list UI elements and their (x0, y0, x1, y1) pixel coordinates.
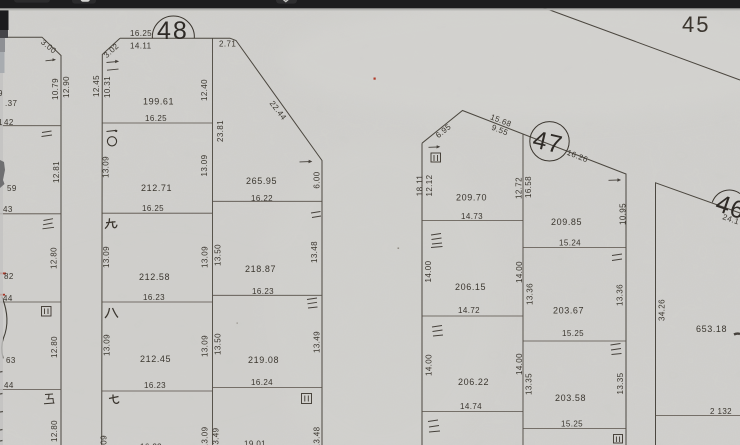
svg-text:16.25: 16.25 (130, 29, 152, 38)
svg-text:12.72: 12.72 (515, 177, 524, 199)
svg-text:13.36: 13.36 (616, 284, 625, 306)
svg-text:13.49: 13.49 (313, 331, 322, 353)
svg-text:44: 44 (4, 381, 14, 390)
svg-text:14.11: 14.11 (130, 42, 152, 51)
svg-text:43: 43 (3, 205, 13, 214)
svg-text:13.09: 13.09 (201, 246, 210, 268)
svg-text:14.72: 14.72 (458, 306, 480, 315)
svg-text:16.24: 16.24 (251, 378, 273, 387)
svg-text:12.90: 12.90 (62, 76, 71, 98)
svg-text:15.25: 15.25 (561, 420, 583, 429)
svg-text:206.15: 206.15 (455, 282, 486, 292)
svg-text:209.85: 209.85 (551, 217, 582, 227)
svg-text:265.95: 265.95 (246, 176, 277, 186)
svg-text:14.73: 14.73 (461, 212, 483, 221)
svg-text:9: 9 (0, 89, 3, 98)
svg-text:218.87: 218.87 (245, 264, 276, 274)
svg-text:45: 45 (682, 12, 710, 37)
svg-text:15.24: 15.24 (559, 239, 581, 248)
svg-text:12.40: 12.40 (200, 79, 209, 101)
svg-text:13.35: 13.35 (525, 373, 534, 395)
svg-text:206.22: 206.22 (458, 377, 489, 387)
svg-text:10.31: 10.31 (103, 76, 112, 98)
svg-text:13.09: 13.09 (102, 246, 111, 268)
svg-text:19.01: 19.01 (244, 440, 266, 445)
svg-text:16.25: 16.25 (142, 204, 164, 213)
svg-text:44: 44 (3, 294, 13, 303)
svg-text:13.48: 13.48 (310, 241, 319, 263)
svg-text:16.22: 16.22 (251, 194, 273, 203)
svg-text:203.58: 203.58 (555, 393, 586, 403)
svg-text:34.26: 34.26 (658, 299, 667, 321)
svg-text:13.09: 13.09 (102, 156, 111, 178)
svg-text:16.23: 16.23 (143, 293, 165, 302)
svg-text:2 132: 2 132 (710, 407, 732, 416)
svg-text:12.12: 12.12 (425, 174, 434, 196)
svg-text:13.09: 13.09 (200, 154, 209, 176)
svg-text:82: 82 (4, 272, 14, 281)
svg-text:48: 48 (157, 17, 189, 45)
svg-text:.37: .37 (5, 99, 17, 108)
svg-text:16.58: 16.58 (524, 176, 533, 198)
svg-text:14.00: 14.00 (515, 353, 524, 375)
svg-text:59: 59 (7, 184, 17, 193)
svg-text:212.45: 212.45 (140, 354, 171, 364)
svg-text:18.11: 18.11 (416, 175, 425, 197)
svg-text:16.25: 16.25 (145, 114, 167, 123)
svg-text:16.23: 16.23 (252, 287, 274, 296)
svg-text:23.81: 23.81 (216, 120, 225, 142)
svg-text:16.23: 16.23 (144, 381, 166, 390)
svg-text:653.18: 653.18 (696, 324, 727, 334)
svg-text:14.00: 14.00 (425, 354, 434, 376)
svg-text:13.09: 13.09 (100, 435, 109, 445)
svg-text:10.95: 10.95 (619, 203, 628, 225)
svg-text:13.35: 13.35 (616, 372, 625, 394)
svg-text:14.74: 14.74 (460, 402, 482, 411)
svg-text:12.80: 12.80 (50, 247, 59, 269)
svg-text:13.36: 13.36 (526, 283, 535, 305)
svg-text:203.67: 203.67 (553, 306, 584, 316)
svg-text:13.50: 13.50 (214, 244, 223, 266)
svg-text:212.58: 212.58 (139, 272, 170, 282)
svg-text:12.81: 12.81 (52, 161, 61, 183)
svg-text:12.80: 12.80 (50, 336, 59, 358)
svg-text:13.09: 13.09 (103, 334, 112, 356)
svg-text:13.09: 13.09 (201, 426, 210, 445)
svg-text:10.79: 10.79 (51, 78, 60, 100)
svg-text:12.45: 12.45 (92, 75, 101, 97)
svg-text:209.70: 209.70 (456, 193, 487, 203)
svg-text:14.00: 14.00 (424, 260, 433, 282)
svg-text:13.50: 13.50 (214, 333, 223, 355)
svg-text:14.00: 14.00 (515, 261, 524, 283)
svg-text:63: 63 (6, 356, 16, 365)
svg-text:15.25: 15.25 (562, 329, 584, 338)
svg-text:219.08: 219.08 (248, 355, 279, 365)
svg-text:199.61: 199.61 (143, 97, 174, 107)
svg-text:42: 42 (4, 118, 14, 127)
svg-text:6.00: 6.00 (313, 171, 322, 188)
svg-text:13.48: 13.48 (313, 426, 322, 445)
svg-text:1: 1 (0, 118, 3, 127)
svg-text:2.71: 2.71 (219, 40, 236, 49)
svg-text:212.71: 212.71 (141, 183, 172, 193)
svg-text:13.09: 13.09 (201, 335, 210, 357)
svg-text:13.49: 13.49 (212, 427, 221, 445)
svg-text:12.80: 12.80 (50, 420, 59, 442)
